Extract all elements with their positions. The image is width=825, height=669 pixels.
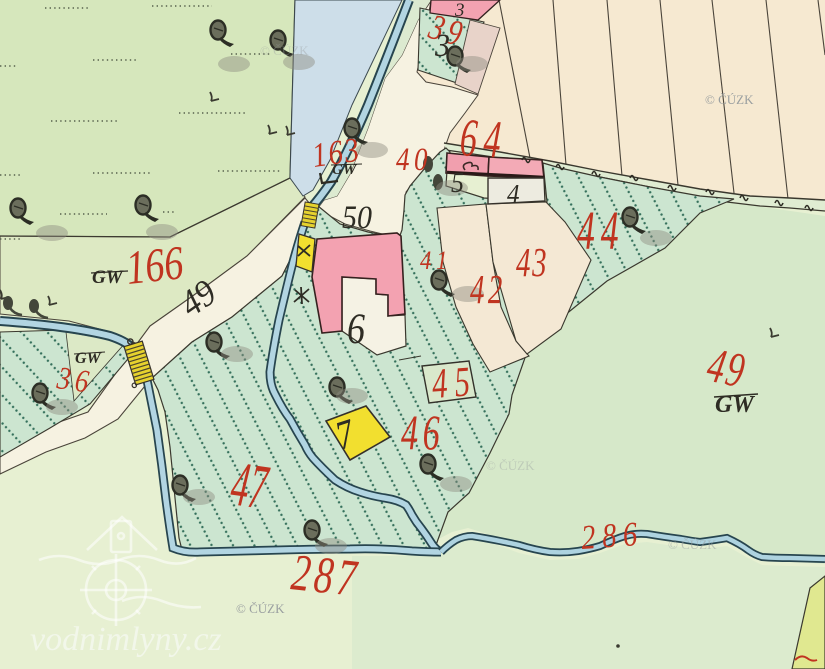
svg-text:64: 64 — [458, 107, 510, 170]
svg-text:45: 45 — [430, 358, 478, 408]
svg-text:43: 43 — [516, 239, 548, 285]
svg-text:5: 5 — [451, 167, 464, 198]
svg-text:41: 41 — [420, 247, 452, 276]
svg-text:vodnimlyny.cz: vodnimlyny.cz — [30, 621, 222, 658]
svg-text:© ČÚZK: © ČÚZK — [236, 601, 285, 616]
svg-text:© ČÚZK: © ČÚZK — [260, 43, 309, 58]
svg-text:286: 286 — [580, 514, 645, 556]
svg-text:© ČÚZK: © ČÚZK — [668, 537, 717, 552]
svg-text:© ČÚZK: © ČÚZK — [486, 458, 535, 473]
svg-text:42: 42 — [470, 266, 506, 312]
svg-text:3: 3 — [454, 0, 465, 21]
svg-text:44: 44 — [577, 200, 625, 260]
svg-text:40: 40 — [396, 140, 432, 177]
svg-text:46: 46 — [401, 406, 444, 461]
svg-text:287: 287 — [289, 542, 363, 607]
svg-text:© ČÚZK: © ČÚZK — [705, 92, 754, 107]
svg-text:6: 6 — [347, 305, 365, 353]
svg-text:50: 50 — [342, 199, 372, 236]
svg-text:3: 3 — [434, 27, 450, 64]
svg-text:GW: GW — [92, 267, 124, 288]
svg-text:4: 4 — [507, 179, 520, 209]
